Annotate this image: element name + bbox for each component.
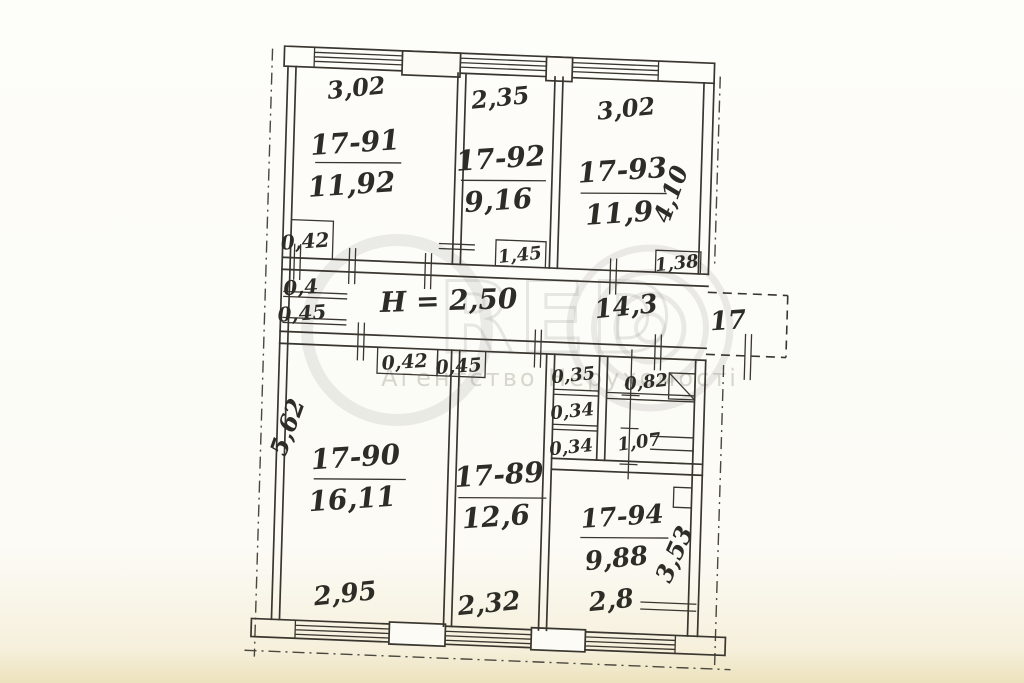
dim-below-corridor-2: 0,45 bbox=[435, 354, 483, 379]
room-17-94-area: 9,88 bbox=[583, 541, 649, 577]
wall-pier-top-1 bbox=[402, 51, 461, 77]
dim-niche-right: 1,38 bbox=[654, 251, 700, 276]
boundary-left bbox=[254, 49, 272, 657]
corridor-right-label: 17 bbox=[709, 305, 747, 337]
dim-cell-2: 0,34 bbox=[549, 399, 595, 424]
room-17-89-number: 17-89 bbox=[453, 455, 545, 494]
scanned-floor-plan-page: RED Агентство Нерухомості bbox=[0, 0, 1024, 683]
room-17-90-width: 2,95 bbox=[311, 576, 378, 612]
dim-left-stack-2: 0,4 bbox=[282, 274, 318, 300]
dim-left-stack-3: 0,45 bbox=[277, 300, 327, 327]
room-17-89-area: 12,6 bbox=[461, 498, 531, 535]
room-17-91-number: 17-91 bbox=[309, 123, 401, 162]
room-17-92-number: 17-92 bbox=[455, 139, 547, 178]
dim-left-stack-1: 0,42 bbox=[280, 228, 330, 255]
wall-between-17-89-17-94 bbox=[538, 354, 554, 630]
wall-between-17-92-17-93 bbox=[549, 77, 563, 268]
wall-pier-bottom-1 bbox=[389, 622, 446, 646]
notch-17-94-right bbox=[673, 487, 692, 508]
room-17-92-area: 9,16 bbox=[463, 182, 533, 219]
wall-pier-top-2 bbox=[546, 57, 573, 82]
room-17-94-width: 2,8 bbox=[586, 584, 635, 618]
bottom-wall bbox=[251, 616, 726, 657]
fraction-line-17-94 bbox=[580, 535, 668, 542]
room-17-93-area: 11,9 bbox=[584, 195, 654, 232]
room-17-93-number: 17-93 bbox=[576, 151, 668, 190]
dim-niche-center: 1,45 bbox=[497, 243, 543, 268]
room-17-94-number: 17-94 bbox=[580, 500, 665, 535]
room-17-90-area: 16,11 bbox=[307, 480, 397, 519]
boundary-right-lower bbox=[715, 365, 724, 669]
dim-shaft-upper: 0,82 bbox=[623, 370, 669, 395]
right-wall-upper bbox=[698, 83, 714, 274]
room-17-92-width: 2,35 bbox=[469, 80, 531, 115]
room-17-94-top-wall bbox=[551, 458, 702, 475]
room-17-90-height: 5,62 bbox=[264, 395, 311, 460]
boundary-right-upper bbox=[715, 77, 721, 267]
floor-plan-svg: RED Агентство Нерухомості bbox=[0, 0, 1024, 683]
room-17-91-area: 11,92 bbox=[307, 165, 397, 204]
dim-shaft-lower: 1,07 bbox=[616, 429, 663, 456]
wall-pier-bottom-2 bbox=[531, 628, 586, 652]
room-17-94-height: 3,53 bbox=[649, 521, 699, 586]
dim-cell-3: 0,34 bbox=[548, 435, 594, 460]
dim-cell-1: 0,35 bbox=[550, 363, 596, 388]
room-17-93-width: 3,02 bbox=[595, 91, 656, 126]
corridor-ceiling-height: H = 2,50 bbox=[378, 282, 518, 319]
room-17-90-number: 17-90 bbox=[310, 438, 402, 477]
room-17-91-width: 3,02 bbox=[326, 70, 387, 105]
room-17-89-width: 2,32 bbox=[455, 586, 522, 622]
corridor-length: 14,3 bbox=[593, 289, 659, 325]
dim-below-corridor-1: 0,42 bbox=[381, 350, 429, 375]
